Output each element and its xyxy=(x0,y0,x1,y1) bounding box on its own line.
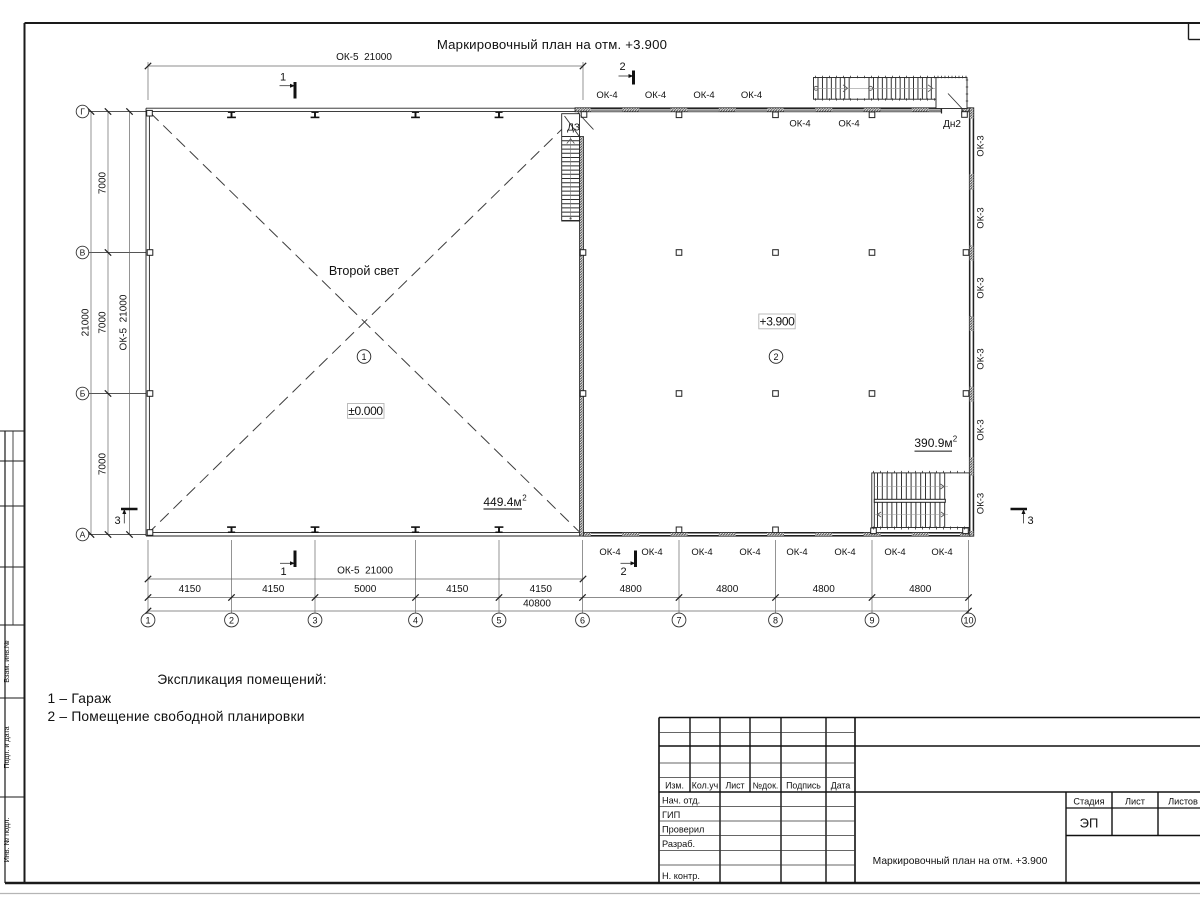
svg-text:4800: 4800 xyxy=(813,584,836,595)
svg-text:ОК-4: ОК-4 xyxy=(834,547,855,558)
svg-text:ДЗ: ДЗ xyxy=(567,123,580,134)
svg-text:9: 9 xyxy=(869,615,874,625)
svg-text:Г: Г xyxy=(80,107,85,117)
svg-text:2: 2 xyxy=(619,61,625,73)
svg-text:3: 3 xyxy=(114,515,120,527)
svg-text:10: 10 xyxy=(963,615,973,625)
svg-text:Б: Б xyxy=(80,389,86,399)
svg-text:ОК-4: ОК-4 xyxy=(599,547,620,558)
svg-text:Экспликация помещений:: Экспликация помещений: xyxy=(157,672,327,687)
svg-text:5000: 5000 xyxy=(354,584,377,595)
svg-text:Лист: Лист xyxy=(1125,797,1146,807)
svg-text:2: 2 xyxy=(953,435,958,444)
svg-text:ОК-5 21000: ОК-5 21000 xyxy=(119,294,130,350)
svg-text:Инв. № подл.: Инв. № подл. xyxy=(2,818,11,863)
svg-text:1: 1 xyxy=(280,72,286,84)
svg-text:7000: 7000 xyxy=(98,171,109,194)
svg-text:4: 4 xyxy=(413,615,418,625)
svg-text:5: 5 xyxy=(496,615,501,625)
svg-text:В: В xyxy=(80,248,86,258)
svg-text:3: 3 xyxy=(312,615,317,625)
svg-text:4800: 4800 xyxy=(909,584,932,595)
svg-text:ОК-4: ОК-4 xyxy=(786,547,807,558)
svg-text:ОК-3: ОК-3 xyxy=(976,493,987,514)
svg-text:6: 6 xyxy=(580,615,585,625)
svg-text:Маркировочный план на отм. +3.: Маркировочный план на отм. +3.900 xyxy=(437,37,667,52)
svg-text:Дата: Дата xyxy=(831,781,851,791)
svg-text:ОК-4: ОК-4 xyxy=(645,90,666,101)
svg-text:Изм.: Изм. xyxy=(665,781,684,791)
svg-text:4800: 4800 xyxy=(716,584,739,595)
svg-text:Листов: Листов xyxy=(1168,797,1198,807)
svg-text:ОК-3: ОК-3 xyxy=(976,207,987,228)
svg-text:№док.: №док. xyxy=(753,781,779,791)
svg-text:Кол.уч: Кол.уч xyxy=(692,781,718,791)
svg-text:2 – Помещение свободной планир: 2 – Помещение свободной планировки xyxy=(48,709,305,724)
svg-text:А: А xyxy=(80,530,86,540)
svg-text:Подпись: Подпись xyxy=(786,781,821,791)
svg-text:1: 1 xyxy=(280,566,286,578)
svg-text:+3.900: +3.900 xyxy=(760,314,796,328)
svg-text:4150: 4150 xyxy=(179,584,202,595)
svg-text:4150: 4150 xyxy=(530,584,553,595)
svg-text:Проверил: Проверил xyxy=(662,825,704,835)
svg-text:7000: 7000 xyxy=(98,452,109,475)
svg-text:2: 2 xyxy=(522,494,527,503)
svg-text:ОК-3: ОК-3 xyxy=(976,277,987,298)
svg-text:ЭП: ЭП xyxy=(1080,816,1099,831)
svg-text:1: 1 xyxy=(145,615,150,625)
svg-text:ОК-5 21000: ОК-5 21000 xyxy=(337,566,393,577)
svg-text:8: 8 xyxy=(773,615,778,625)
svg-text:ОК-4: ОК-4 xyxy=(641,547,662,558)
svg-text:ОК-3: ОК-3 xyxy=(976,135,987,156)
svg-text:7000: 7000 xyxy=(98,311,109,334)
svg-text:449.4м: 449.4м xyxy=(483,495,521,509)
svg-text:Дн2: Дн2 xyxy=(943,119,961,130)
svg-text:ОК-4: ОК-4 xyxy=(596,90,617,101)
svg-text:±0.000: ±0.000 xyxy=(348,404,383,418)
svg-text:390.9м: 390.9м xyxy=(914,436,952,450)
svg-text:ОК-4: ОК-4 xyxy=(789,119,810,130)
svg-text:1: 1 xyxy=(361,352,366,362)
svg-text:ОК-3: ОК-3 xyxy=(976,419,987,440)
svg-text:ОК-4: ОК-4 xyxy=(693,90,714,101)
svg-text:ГИП: ГИП xyxy=(662,810,680,820)
svg-text:ОК-4: ОК-4 xyxy=(739,547,760,558)
svg-text:Маркировочный план на отм. +3.: Маркировочный план на отм. +3.900 xyxy=(873,856,1048,867)
svg-text:Второй свет: Второй свет xyxy=(329,264,400,278)
svg-text:21000: 21000 xyxy=(81,308,92,336)
svg-text:ОК-3: ОК-3 xyxy=(976,348,987,369)
svg-text:4150: 4150 xyxy=(262,584,285,595)
svg-text:3: 3 xyxy=(1027,515,1033,527)
svg-text:Подп. и дата: Подп. и дата xyxy=(2,726,11,768)
svg-text:Нач. отд.: Нач. отд. xyxy=(662,796,700,806)
svg-text:ОК-4: ОК-4 xyxy=(931,547,952,558)
svg-text:Взам. инв.№: Взам. инв.№ xyxy=(2,640,11,683)
svg-text:ОК-4: ОК-4 xyxy=(691,547,712,558)
svg-text:Н. контр.: Н. контр. xyxy=(662,871,700,881)
svg-text:7: 7 xyxy=(676,615,681,625)
svg-text:2: 2 xyxy=(620,566,626,578)
svg-text:Стадия: Стадия xyxy=(1073,797,1104,807)
svg-text:1 – Гараж: 1 – Гараж xyxy=(48,691,112,706)
svg-text:40800: 40800 xyxy=(523,599,551,610)
svg-text:ОК-4: ОК-4 xyxy=(838,119,859,130)
svg-text:2: 2 xyxy=(773,352,778,362)
svg-text:ОК-4: ОК-4 xyxy=(884,547,905,558)
svg-text:4800: 4800 xyxy=(620,584,643,595)
svg-text:ОК-5 21000: ОК-5 21000 xyxy=(336,52,392,63)
svg-text:2: 2 xyxy=(229,615,234,625)
svg-text:4150: 4150 xyxy=(446,584,469,595)
svg-text:Лист: Лист xyxy=(725,781,744,791)
svg-text:ОК-4: ОК-4 xyxy=(741,90,762,101)
svg-text:Разраб.: Разраб. xyxy=(662,839,695,849)
